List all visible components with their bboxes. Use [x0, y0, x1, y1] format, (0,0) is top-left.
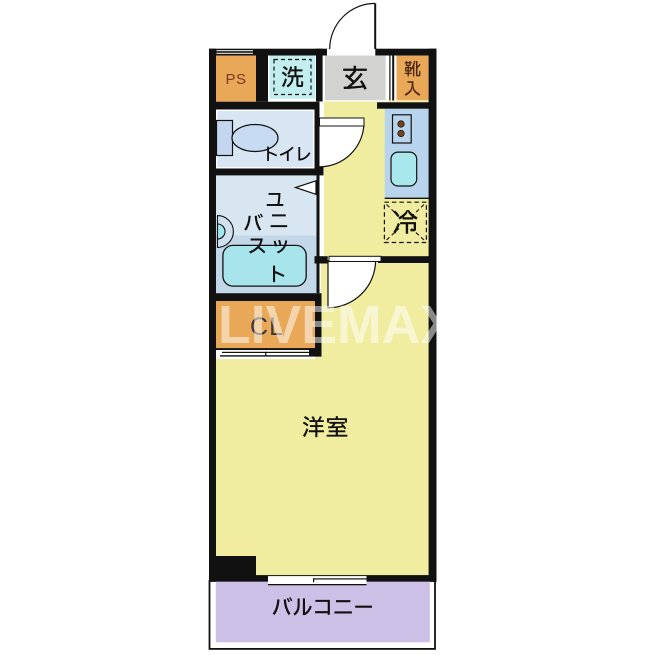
- svg-text:LIVEMAX: LIVEMAX: [218, 295, 456, 355]
- svg-text:PS: PS: [225, 71, 246, 88]
